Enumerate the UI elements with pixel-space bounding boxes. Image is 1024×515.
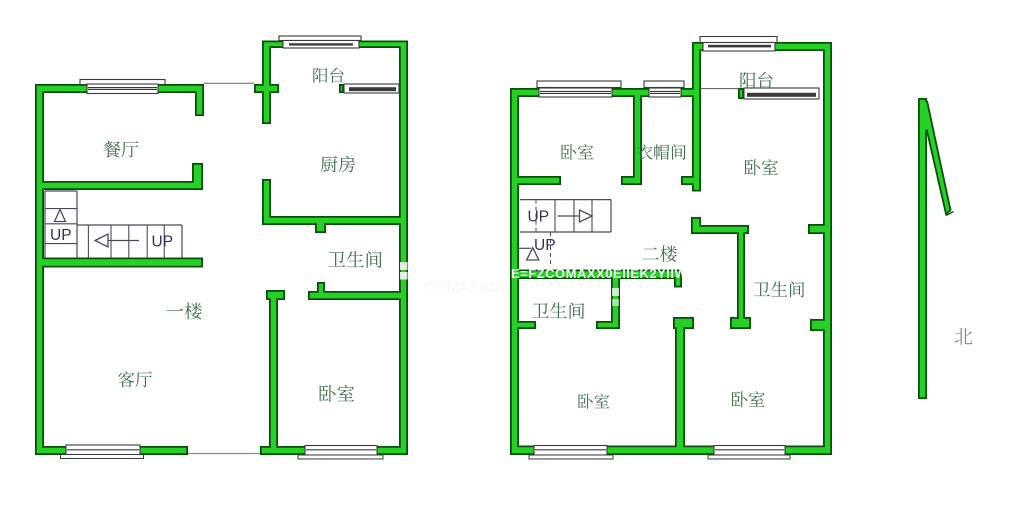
svg-text:E=FZCOMAXX0EIIEK2YIIW: E=FZCOMAXX0EIIEK2YIIW xyxy=(511,266,688,281)
svg-text:UP: UP xyxy=(152,234,174,251)
svg-text:UP: UP xyxy=(528,209,550,226)
svg-text:UP: UP xyxy=(50,227,72,244)
svg-text:COMAX0188: COMAX0188 xyxy=(424,279,512,296)
svg-text:UP: UP xyxy=(534,237,556,254)
